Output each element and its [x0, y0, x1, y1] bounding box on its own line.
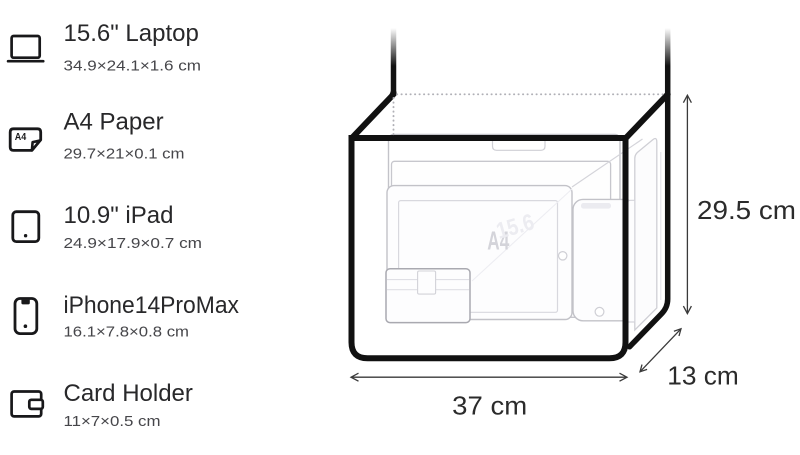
svg-text:29.7×21×0.1 cm: 29.7×21×0.1 cm [64, 146, 185, 163]
svg-text:34.9×24.1×1.6 cm: 34.9×24.1×1.6 cm [64, 58, 202, 75]
svg-text:13 cm: 13 cm [667, 360, 739, 390]
svg-text:37 cm: 37 cm [452, 391, 527, 421]
svg-text:24.9×17.9×0.7 cm: 24.9×17.9×0.7 cm [64, 235, 203, 252]
svg-text:A4: A4 [15, 131, 27, 143]
svg-text:15.6" Laptop: 15.6" Laptop [64, 20, 199, 47]
svg-text:A4 Paper: A4 Paper [64, 108, 164, 135]
svg-text:29.5 cm: 29.5 cm [697, 195, 796, 225]
svg-text:11×7×0.5 cm: 11×7×0.5 cm [64, 413, 161, 430]
svg-text:16.1×7.8×0.8 cm: 16.1×7.8×0.8 cm [64, 324, 190, 341]
svg-text:10.9" iPad: 10.9" iPad [64, 202, 174, 229]
svg-text:iPhone14ProMax: iPhone14ProMax [64, 292, 240, 319]
svg-text:Card Holder: Card Holder [64, 380, 193, 407]
